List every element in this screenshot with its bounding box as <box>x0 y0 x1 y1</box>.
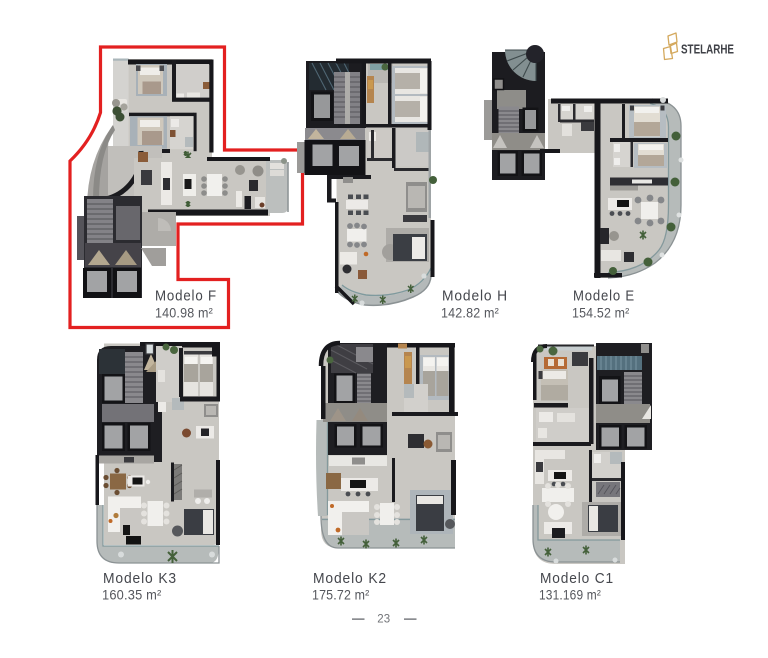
svg-text:Modelo K3: Modelo K3 <box>103 571 177 587</box>
svg-text:154.52 m²: 154.52 m² <box>572 305 630 321</box>
svg-text:140.98 m²: 140.98 m² <box>155 305 213 321</box>
svg-text:23: 23 <box>377 614 390 626</box>
svg-text:STELARHE: STELARHE <box>681 43 734 57</box>
svg-text:Modelo F: Modelo F <box>155 289 217 305</box>
svg-text:Modelo H: Modelo H <box>442 289 508 305</box>
svg-text:Modelo K2: Modelo K2 <box>313 571 387 587</box>
svg-text:Modelo E: Modelo E <box>573 289 635 305</box>
svg-text:142.82 m²: 142.82 m² <box>441 305 499 321</box>
svg-text:175.72 m²: 175.72 m² <box>312 587 370 603</box>
svg-text:Modelo C1: Modelo C1 <box>540 571 614 587</box>
svg-text:131.169 m²: 131.169 m² <box>539 587 601 603</box>
svg-text:160.35 m²: 160.35 m² <box>102 587 162 603</box>
